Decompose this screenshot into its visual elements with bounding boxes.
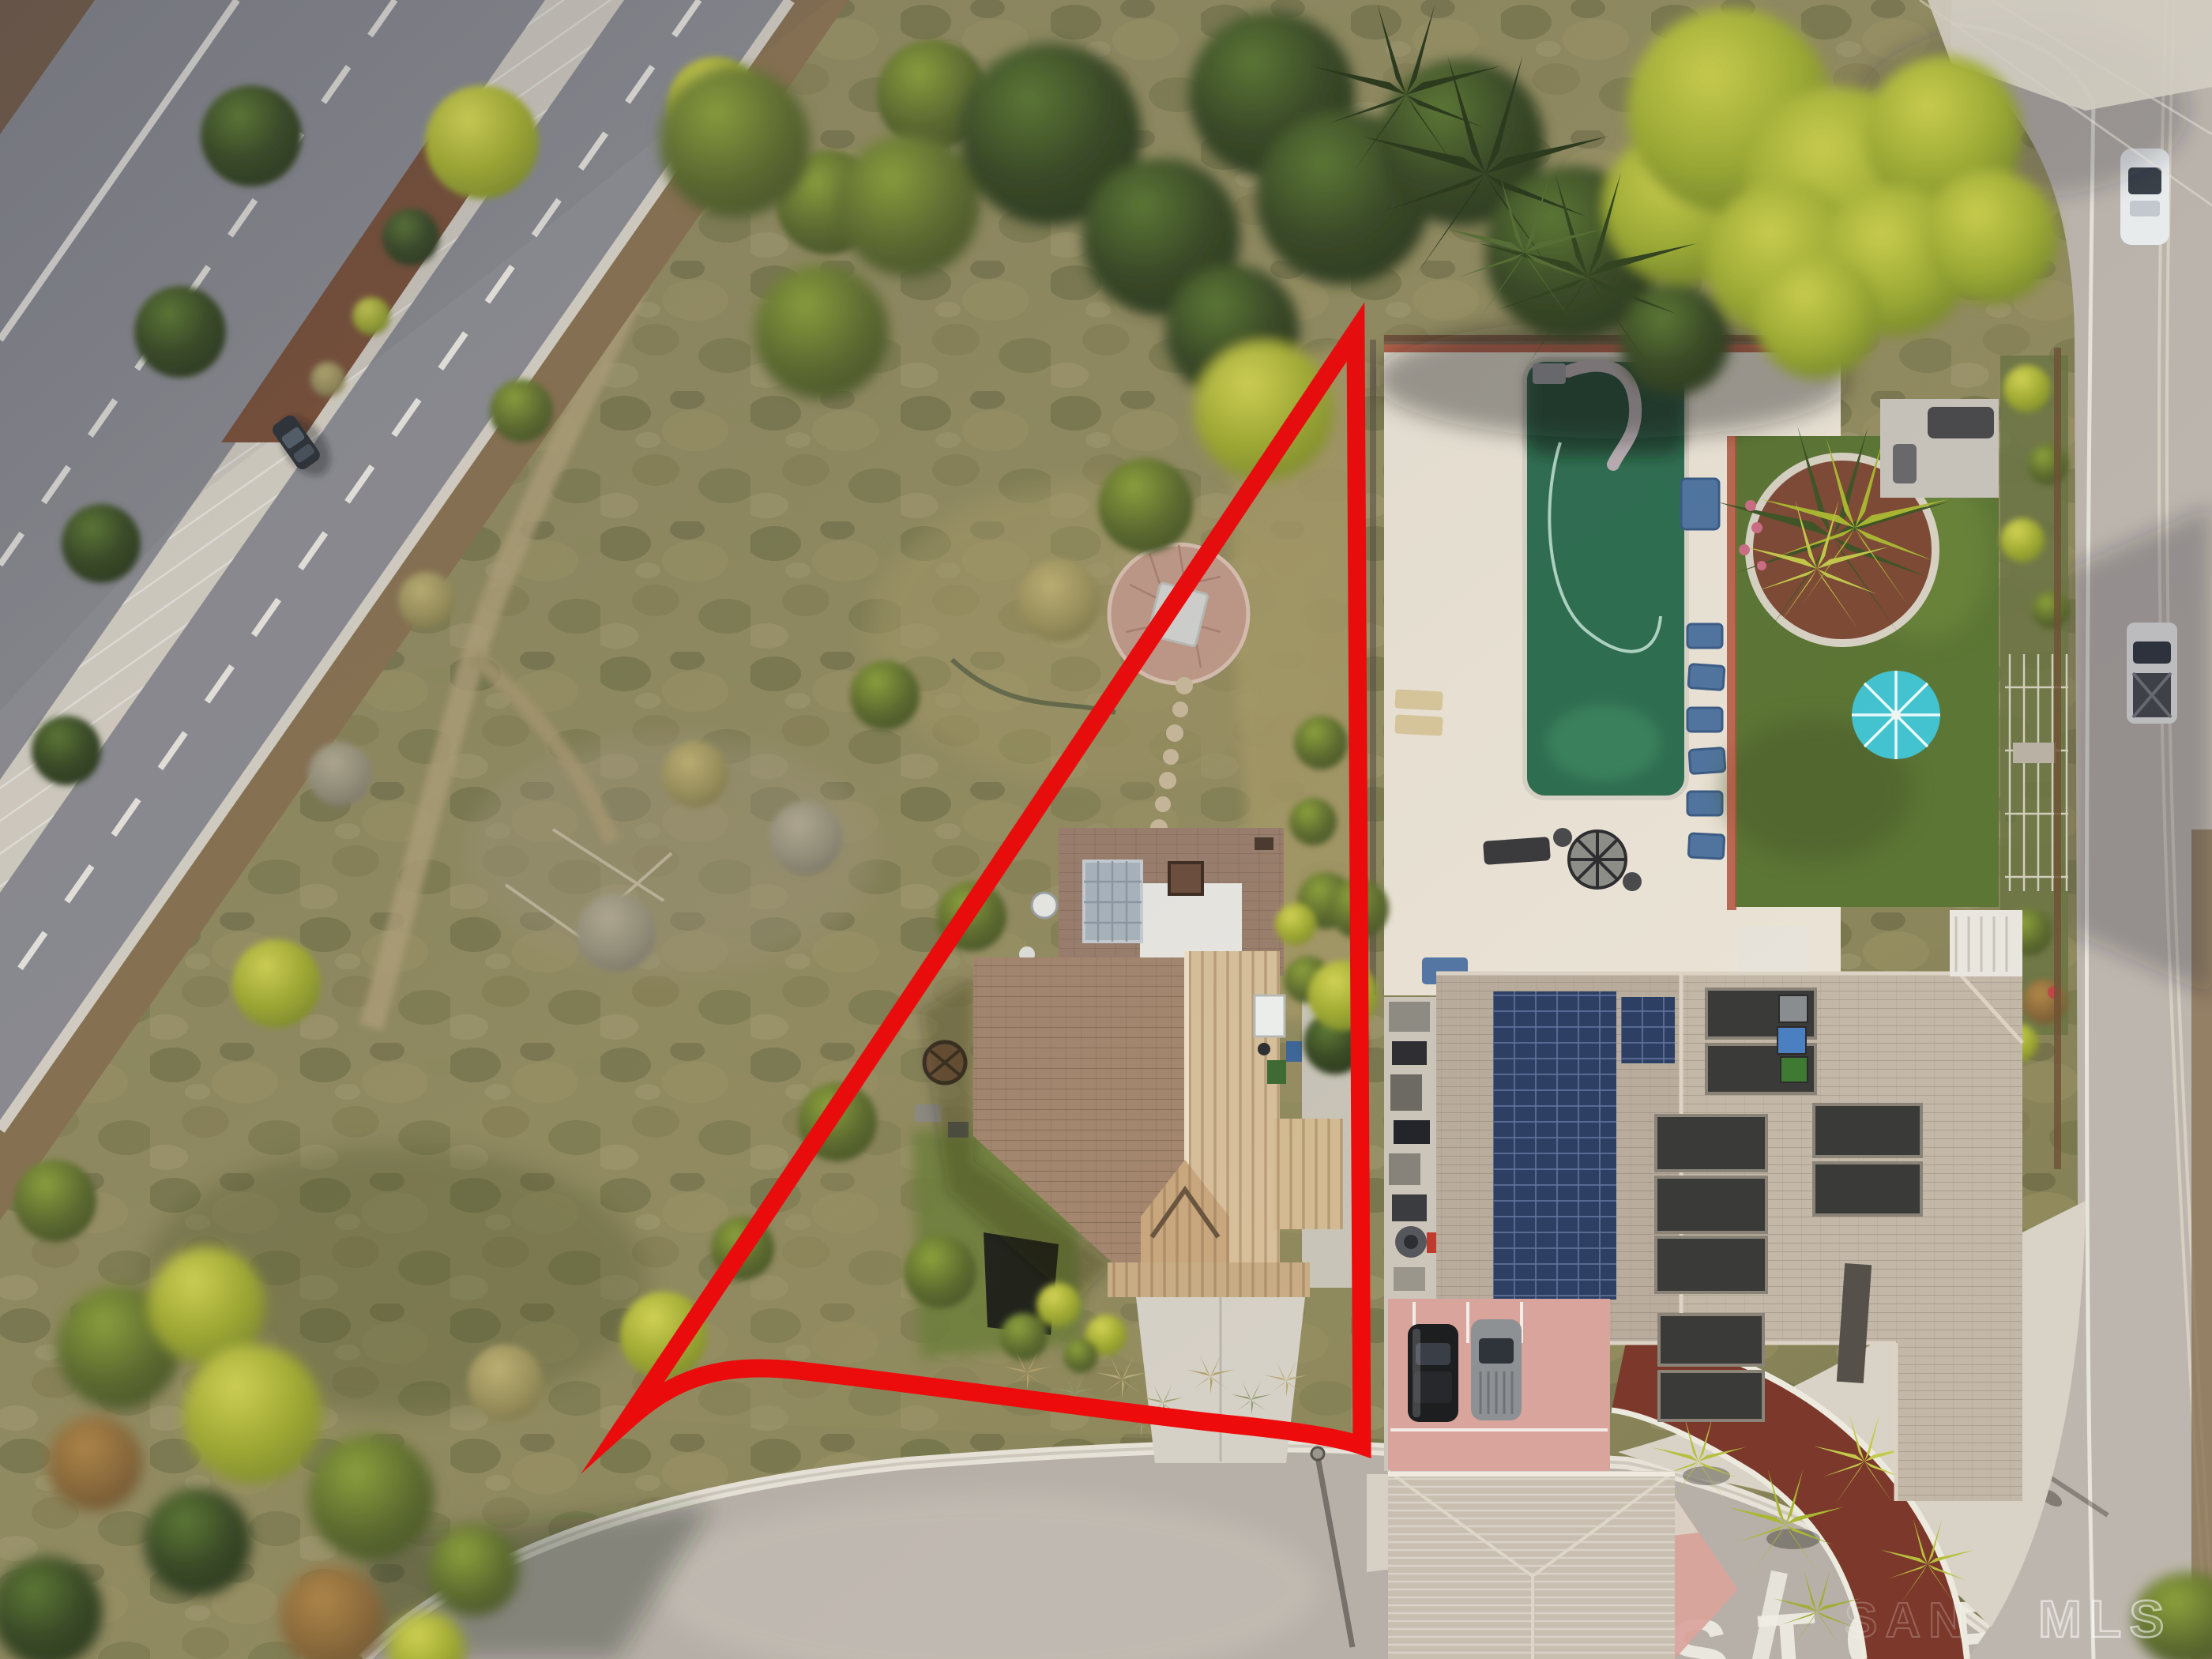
aerial-photo-frame: STOP — [0, 0, 2212, 1659]
aerial-drone-photo: STOP — [0, 0, 2212, 1659]
color-grade-overlay — [0, 0, 2212, 1659]
